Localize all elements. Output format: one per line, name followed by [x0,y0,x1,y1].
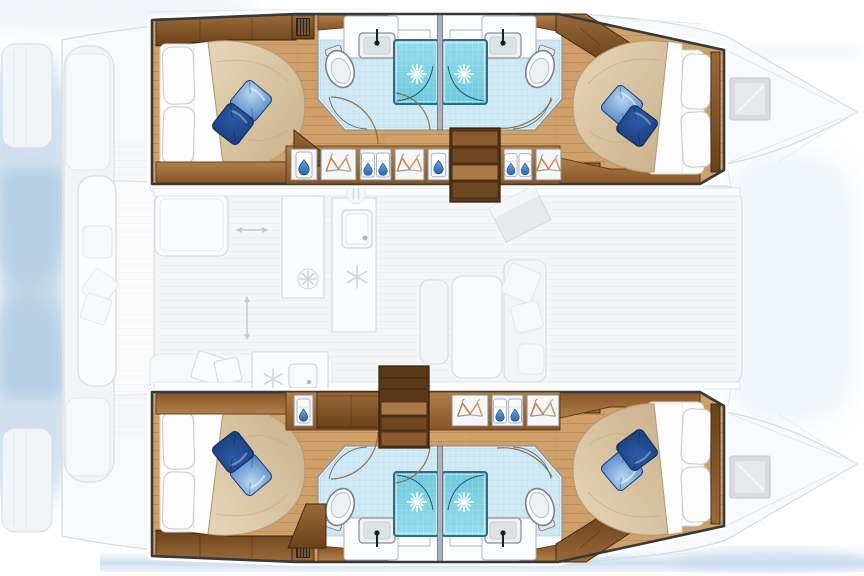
wardrobe-cabinet [317,392,385,428]
floorplan-page: Top-view illustrated floor plan of a sai… [0,0,864,576]
salon-bench [420,280,448,364]
wardrobe-cubby [321,149,356,180]
wardrobe-cubby [452,395,488,426]
wardrobe-cubby [527,395,559,426]
salon-table [452,276,502,378]
cockpit-table [155,194,228,256]
companionway-stairs [450,128,500,202]
floorplan-canvas: Top-view illustrated floor plan of a sai… [0,0,864,576]
burner-icon [298,269,318,289]
galley-sink [342,210,372,248]
companionway-stairs [379,366,429,448]
throw-pillow-faded [214,357,242,385]
galley-sink [289,364,317,388]
sofa-cushion [510,300,544,334]
